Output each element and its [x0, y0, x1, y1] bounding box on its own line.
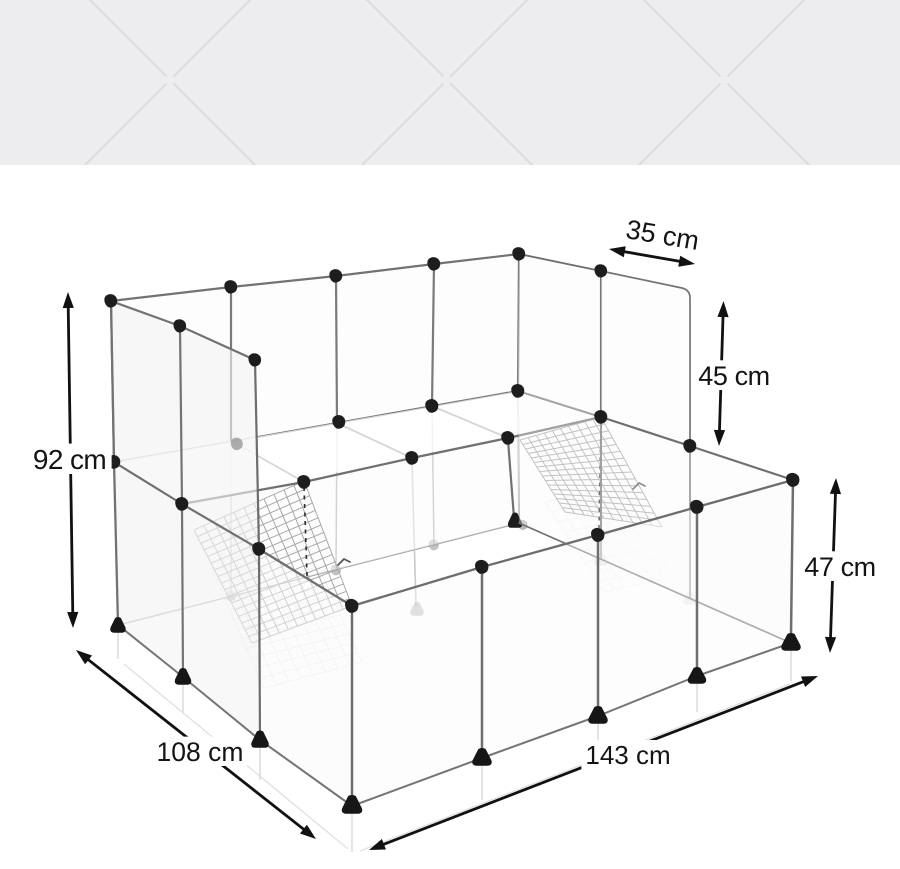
svg-text:45 cm: 45 cm — [698, 361, 770, 391]
svg-text:47 cm: 47 cm — [804, 552, 876, 582]
svg-text:143 cm: 143 cm — [585, 740, 670, 770]
svg-text:92 cm: 92 cm — [33, 444, 106, 475]
svg-text:108 cm: 108 cm — [157, 737, 244, 767]
